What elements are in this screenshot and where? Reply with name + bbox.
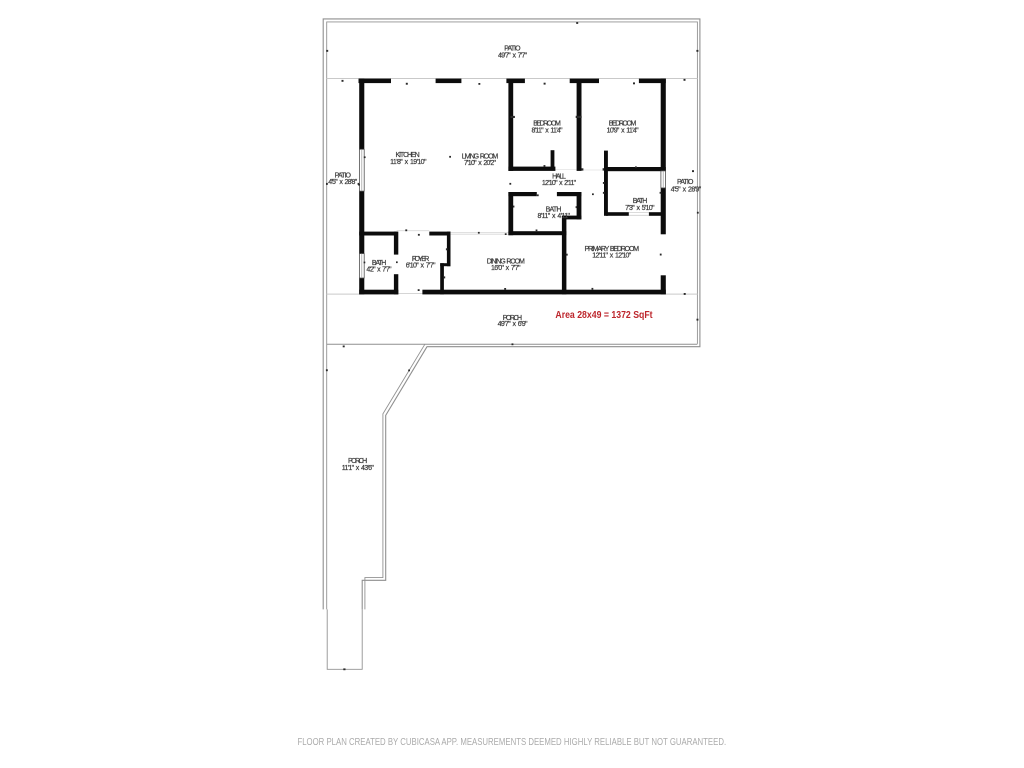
svg-text:FLOOR PLAN CREATED BY CUBICASA: FLOOR PLAN CREATED BY CUBICASA APP. MEAS… xyxy=(297,737,726,748)
svg-text:49'7" x 6'9": 49'7" x 6'9" xyxy=(498,321,528,328)
svg-text:7'3" x 5'10": 7'3" x 5'10" xyxy=(625,205,655,212)
svg-text:6'10" x 7'7": 6'10" x 7'7" xyxy=(406,263,436,270)
svg-text:4'2" x 7'7": 4'2" x 7'7" xyxy=(366,266,392,273)
svg-text:7'10" x 20'2": 7'10" x 20'2" xyxy=(464,160,497,167)
svg-text:PATIO: PATIO xyxy=(677,179,694,186)
svg-text:11'8" x 19'10": 11'8" x 19'10" xyxy=(390,159,427,166)
svg-text:11'1" x 43'6": 11'1" x 43'6" xyxy=(342,465,375,472)
svg-text:10'9" x 11'4": 10'9" x 11'4" xyxy=(607,127,640,134)
svg-text:8'11" x 11'4": 8'11" x 11'4" xyxy=(532,127,564,134)
svg-text:16'0" x 7'7": 16'0" x 7'7" xyxy=(491,265,521,272)
svg-text:4'5" x 28'8": 4'5" x 28'8" xyxy=(328,179,358,186)
svg-text:49'7" x 7'7": 49'7" x 7'7" xyxy=(498,53,528,60)
svg-text:Area 28x49 = 1372 SqFt: Area 28x49 = 1372 SqFt xyxy=(555,310,653,321)
svg-text:PATIO: PATIO xyxy=(504,46,521,53)
svg-text:8'11" x 4'11": 8'11" x 4'11" xyxy=(538,213,571,220)
svg-text:12'10" x 2'11": 12'10" x 2'11" xyxy=(542,180,577,187)
svg-text:12'11" x 12'10": 12'11" x 12'10" xyxy=(592,253,632,260)
svg-text:4'5" x 28'9": 4'5" x 28'9" xyxy=(671,186,702,193)
